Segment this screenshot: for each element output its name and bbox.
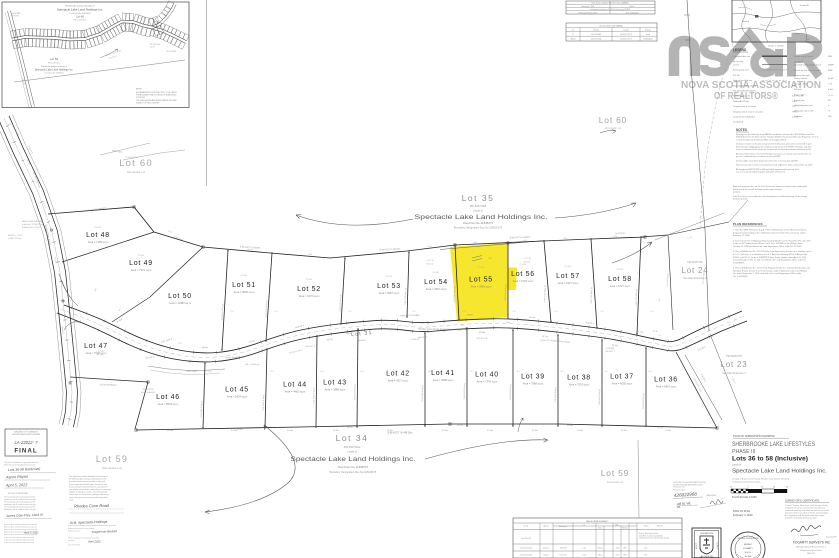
svg-text:Lots 36 to 58 (Inclusive): Lots 36 to 58 (Inclusive) bbox=[732, 456, 808, 463]
svg-text:GPS Survey Epoch 1997.0: GPS Survey Epoch 1997.0 bbox=[578, 12, 597, 14]
svg-text:Signed by KPF: Signed by KPF bbox=[826, 537, 837, 539]
svg-text:described lands comprise grant: described lands comprise granted a under… bbox=[69, 480, 105, 483]
svg-text:Survey marker: Survey marker bbox=[794, 78, 807, 80]
svg-text:Lot 38: Lot 38 bbox=[567, 375, 591, 382]
svg-text:Camperdown: Camperdown bbox=[794, 33, 805, 35]
svg-text:Lot 47: Lot 47 bbox=[84, 343, 108, 350]
svg-text:the following rights-of-way an: the following rights-of-way and boundari… bbox=[69, 478, 107, 481]
svg-text:property descript.): property descript.) bbox=[794, 74, 810, 77]
svg-text:41.40m: 41.40m bbox=[333, 430, 339, 432]
svg-text:LEGEND: LEGEND bbox=[733, 48, 747, 52]
svg-text:Area = 7195 sq.m: Area = 7195 sq.m bbox=[88, 240, 109, 244]
svg-text:4582-B: 4582-B bbox=[571, 39, 576, 41]
svg-text:Spectacle Lake Land Holdings I: Spectacle Lake Land Holdings Inc. bbox=[35, 69, 74, 72]
svg-text:Spectacle Lake Land Holding: Spectacle Lake Land Holdings Inc. bbox=[415, 214, 548, 221]
svg-text:NSCM (gone): NSCM (gone) bbox=[643, 39, 653, 41]
svg-text:Plan: Plan bbox=[644, 555, 647, 557]
svg-text:Lot 49: Lot 49 bbox=[129, 260, 153, 267]
svg-text:KEVIN P.: KEVIN P. bbox=[744, 544, 753, 546]
svg-text:Dated this the 3rd day of Febr: Dated this the 3rd day of February, 2022… bbox=[785, 517, 817, 520]
svg-text:41.40m: 41.40m bbox=[167, 430, 173, 432]
svg-text:Distances shown on the plan ar: Distances shown on the plan are ground t… bbox=[736, 143, 811, 146]
svg-text:prepared roads heading to the: prepared roads heading to the subdivisio… bbox=[733, 231, 805, 234]
svg-text:PID 60272664: PID 60272664 bbox=[470, 204, 487, 208]
svg-text:S U R V E Y: S U R V E Y bbox=[716, 542, 718, 549]
svg-text:62.0: 62.0 bbox=[361, 371, 364, 373]
svg-text:Lot 37: Lot 37 bbox=[610, 374, 634, 381]
svg-text:Utility/telephone pole: Utility/telephone pole bbox=[794, 104, 813, 107]
svg-text:Field survey work carried out: Field survey work carried out during the… bbox=[736, 164, 813, 167]
svg-text:PID 60272664 PID 60271: PID 60272664 PID 60271 bbox=[733, 91, 757, 93]
svg-text:75.0: 75.0 bbox=[651, 311, 654, 313]
svg-text:Lot 59: Lot 59 bbox=[601, 468, 629, 478]
svg-text:See note: See note bbox=[427, 263, 434, 266]
svg-text:Iron pipe or bar: Iron pipe or bar bbox=[794, 84, 808, 86]
svg-text:Area = 8092 sq.m: Area = 8092 sq.m bbox=[612, 382, 633, 386]
svg-text:& dist from 3 TO 58/57 Plan: & dist from 3 TO 58/57 Plan bbox=[22, 223, 43, 226]
svg-text:Sandy Hills: Sandy Hills bbox=[800, 5, 809, 7]
svg-text:LA-22022- 7: LA-22022- 7 bbox=[14, 440, 38, 445]
svg-text:N 87 12'33" W: N 87 12'33" W bbox=[143, 389, 154, 391]
svg-text:60.12: 60.12 bbox=[428, 246, 432, 248]
svg-text:Rhodes Cove Road: Rhodes Cove Road bbox=[74, 503, 110, 509]
svg-text:Area = 8534 sq.m: Area = 8534 sq.m bbox=[158, 402, 179, 406]
svg-text:February 14, 1988.: February 14, 1988. bbox=[733, 235, 750, 237]
svg-text:Area = 6657 sq.m: Area = 6657 sq.m bbox=[379, 291, 400, 295]
svg-text:S 03 16'53" E 94.92: S 03 16'53" E 94.92 bbox=[263, 395, 265, 411]
svg-text:Deed Doc.No.11808075: Deed Doc.No.11808075 bbox=[463, 221, 493, 225]
svg-text:Lot 54: Lot 54 bbox=[424, 279, 448, 286]
svg-text:drained systems.: drained systems. bbox=[733, 198, 749, 201]
svg-text:Lot 36: Lot 36 bbox=[654, 377, 678, 384]
svg-text:62.0: 62.0 bbox=[649, 371, 652, 373]
svg-text:53.00: 53.00 bbox=[473, 242, 477, 244]
svg-text:Lot 34: Lot 34 bbox=[336, 433, 369, 443]
svg-text:C 88 41'52" E: C 88 41'52" E bbox=[305, 346, 316, 348]
svg-text:Area = 10996 sq.m: Area = 10996 sq.m bbox=[169, 301, 191, 305]
svg-text:R=385.00: R=385.00 bbox=[358, 340, 365, 342]
svg-text:Deed Doc.No.11808075: Deed Doc.No.11808075 bbox=[338, 465, 368, 469]
svg-text:4,941,117.5454: 4,941,117.5454 bbox=[591, 39, 601, 41]
svg-text:S 03 16'53" E 94.92: S 03 16'53" E 94.92 bbox=[464, 383, 466, 399]
svg-text:34,624.4 B 827.8: 34,624.4 B 827.8 bbox=[620, 34, 632, 36]
svg-text:28.96m: 28.96m bbox=[657, 427, 663, 429]
svg-text:(combined): (combined) bbox=[733, 122, 743, 124]
svg-text:Lot 59: Lot 59 bbox=[96, 454, 128, 464]
svg-text:Approval requested for Lots 36: Approval requested for Lots 36 to 58 (In… bbox=[733, 185, 807, 188]
svg-text:Lot 55: Lot 55 bbox=[469, 277, 493, 284]
svg-text:Area = 5726 sq.m: Area = 5726 sq.m bbox=[513, 279, 534, 283]
svg-text:PLAN OF SUBDIVISION SHOWING: PLAN OF SUBDIVISION SHOWING bbox=[733, 434, 775, 438]
svg-text:3.768 80/8: 3.768 80/8 bbox=[606, 348, 614, 350]
svg-text:SURVEYOR'S CERTIFICATE: SURVEYOR'S CERTIFICATE bbox=[785, 499, 819, 503]
svg-text:roads, to the Finding Roads (S: roads, to the Finding Roads (Sheet 3 of … bbox=[733, 242, 802, 245]
svg-text:to 9-71, (Inclusive, is a subd: to 9-71, (Inclusive, is a subdivision of… bbox=[733, 253, 807, 256]
svg-text:snow clearing service can be p: snow clearing service can be provided al… bbox=[69, 496, 108, 499]
svg-text:Radius/Arc/Chord: Radius/Arc/Chord bbox=[733, 100, 749, 103]
svg-text:Lands herein subdivided: Lands herein subdivided bbox=[733, 117, 755, 119]
svg-text:Deed Doc.No.11808075: Deed Doc.No.11808075 bbox=[44, 73, 63, 75]
svg-text:L.C.C. 40: L.C.C. 40 bbox=[96, 351, 103, 353]
svg-text:Lot 46: Lot 46 bbox=[156, 394, 180, 401]
svg-text:PID 6065: PID 6065 bbox=[386, 276, 393, 278]
svg-text:41.40m: 41.40m bbox=[487, 430, 493, 432]
svg-text:Fence / ditch: Fence / ditch bbox=[794, 93, 805, 96]
svg-text:Boundary Designation Doc.No.: Boundary Designation Doc.No.118108075 bbox=[330, 471, 377, 474]
svg-text:46.58m: 46.58m bbox=[202, 347, 209, 349]
svg-text:PID 6065: PID 6065 bbox=[241, 275, 248, 277]
svg-text:owners should be deemed that t: owners should be deemed that the road wi… bbox=[69, 485, 108, 488]
svg-text:S 03 16'53" E 94.92: S 03 16'53" E 94.92 bbox=[313, 388, 315, 404]
svg-text:S 03 16'53" E 94.92: S 03 16'53" E 94.92 bbox=[643, 393, 645, 409]
svg-text:S 03 16'53" E 94.92: S 03 16'53" E 94.92 bbox=[422, 386, 424, 402]
svg-text:B4V 3C2: B4V 3C2 bbox=[807, 553, 815, 555]
svg-text:PID 60157378: PID 60157378 bbox=[726, 355, 742, 358]
svg-text:See Plan Reference 4: See Plan Reference 4 bbox=[722, 372, 746, 375]
svg-text:41.40m: 41.40m bbox=[665, 430, 671, 432]
svg-text:185sq.: 185sq. bbox=[598, 555, 603, 557]
svg-text:FOGARTY SURVEYS INC.: FOGARTY SURVEYS INC. bbox=[793, 541, 831, 545]
svg-text:3. Plan of Subdivision No. 13: 3. Plan of Subdivision No. 131 001-03 by… bbox=[733, 250, 812, 253]
svg-text:L.C.C. 38: L.C.C. 38 bbox=[523, 258, 530, 260]
svg-text:Area = 6727 sq.m: Area = 6727 sq.m bbox=[610, 284, 631, 288]
svg-text:April 5, 2022: April 5, 2022 bbox=[5, 483, 28, 487]
svg-text:Lot 44: Lot 44 bbox=[283, 382, 307, 389]
svg-text:Inc. dated September 7, 2020,: Inc. dated September 7, 2020, and filed … bbox=[733, 272, 802, 275]
svg-text:S 03 16'53" E 94.92: S 03 16'53" E 94.92 bbox=[201, 402, 203, 418]
svg-text:Lot 58: Lot 58 bbox=[608, 276, 632, 283]
svg-text:62.0: 62.0 bbox=[209, 371, 212, 373]
svg-text:PID 60/mile(?) FD: PID 60/mile(?) FD bbox=[125, 157, 139, 159]
svg-text:Lot 40: Lot 40 bbox=[475, 372, 499, 379]
svg-text:Area = 4327 sq.m: Area = 4327 sq.m bbox=[388, 379, 409, 383]
svg-text:FINAL: FINAL bbox=[14, 448, 37, 455]
svg-text:April 2022: April 2022 bbox=[87, 540, 101, 544]
svg-text:2006-1, and S/D (-), lands of: 2006-1, and S/D (-), lands of SHERRIFS N… bbox=[733, 256, 807, 259]
svg-text:SAME CURVE PLAN 33/8/8: SAME CURVE PLAN 33/8/8 bbox=[22, 220, 43, 223]
svg-text:+1.68: +1.68 bbox=[615, 548, 619, 550]
svg-text:PID 60157394: PID 60157394 bbox=[150, 44, 160, 46]
svg-text:S 03 16'53" E 94.92: S 03 16'53" E 94.92 bbox=[555, 387, 557, 403]
svg-text:75.0: 75.0 bbox=[275, 311, 278, 313]
svg-text:Round iron bar found (noted in: Round iron bar found (noted in bbox=[794, 69, 821, 72]
svg-text:Lands of: Lands of bbox=[347, 450, 357, 454]
svg-text:Standard survey marker found: Standard survey marker found bbox=[794, 63, 821, 66]
svg-text:DATE OF PLAN: DATE OF PLAN bbox=[733, 510, 750, 513]
svg-text:1 88 43'37" 2: 1 88 43'37" 2 bbox=[605, 351, 615, 353]
svg-text:by this plan: by this plan bbox=[733, 60, 743, 63]
svg-text:Lot 52: Lot 52 bbox=[297, 286, 321, 293]
svg-text:+1.58: +1.58 bbox=[582, 555, 586, 557]
svg-text:41.40m: 41.40m bbox=[532, 430, 538, 432]
svg-text:45.08: 45.08 bbox=[308, 254, 312, 256]
svg-text:Lot 51: Lot 51 bbox=[232, 282, 256, 289]
svg-text:+3.68: +3.68 bbox=[615, 555, 619, 557]
svg-text:PID No.: PID No. bbox=[733, 75, 740, 77]
svg-text:NSCM No. 4 20127: NSCM No. 4 20127 bbox=[8, 235, 23, 237]
svg-text:62.0: 62.0 bbox=[517, 371, 520, 373]
svg-text:No. 1-12939581.: No. 1-12939581. bbox=[733, 276, 748, 278]
svg-text:I - Ø: I - Ø bbox=[828, 84, 832, 86]
svg-text:17811 3/8: 17811 3/8 bbox=[560, 548, 567, 550]
svg-text:R=128.01 A=64.02: R=128.01 A=64.02 bbox=[141, 391, 155, 394]
svg-text:S 87 40'17" W: S 87 40'17" W bbox=[477, 338, 488, 340]
svg-text:60sq.m: 60sq.m bbox=[544, 555, 550, 557]
svg-text:36.58m: 36.58m bbox=[479, 332, 486, 334]
svg-text:2.48/45.58: 2.48/45.58 bbox=[411, 339, 419, 341]
svg-text:548 Upper Branch Road, Unit No: 548 Upper Branch Road, Unit No. 2 bbox=[796, 546, 826, 549]
svg-text:Lot 53: Lot 53 bbox=[377, 283, 401, 290]
svg-text:L.C.C. 32: L.C.C. 32 bbox=[426, 260, 433, 262]
svg-text:Drill hole: Drill hole bbox=[794, 89, 803, 91]
svg-text:4. Plan of Subdivision No. 13: 4. Plan of Subdivision No. 13-11729 by F… bbox=[733, 267, 811, 270]
svg-text:Calculated dist. not: Calculated dist. not bbox=[733, 55, 750, 58]
svg-text:Lunenburg County, Nova Scotia: Lunenburg County, Nova Scotia bbox=[732, 481, 761, 484]
svg-text:See note: See note bbox=[524, 261, 531, 264]
svg-text:February 3, 2022: February 3, 2022 bbox=[733, 513, 753, 517]
svg-text:NOTICE OF APPROVAL: NOTICE OF APPROVAL bbox=[8, 492, 28, 495]
svg-text:TPRC 4 88'53": TPRC 4 88'53" bbox=[186, 371, 198, 373]
svg-text:PORTIONS.: PORTIONS. bbox=[136, 97, 146, 99]
svg-text:Hemford: Hemford bbox=[742, 21, 749, 23]
svg-text:62.0: 62.0 bbox=[605, 371, 608, 373]
svg-text:● DH: ● DH bbox=[828, 89, 833, 91]
svg-text:Zone 5 (Modified): Zone 5 (Modified) bbox=[626, 12, 639, 14]
svg-text:Lot 60: Lot 60 bbox=[76, 15, 84, 19]
svg-text:S 03 16'53" E 94.92: S 03 16'53" E 94.92 bbox=[510, 384, 512, 400]
svg-text:25.9: 25.9 bbox=[460, 325, 463, 327]
svg-text:75.0: 75.0 bbox=[513, 311, 516, 313]
svg-text:portions.: portions. bbox=[733, 191, 741, 194]
svg-text:Area = 3888 sq.m: Area = 3888 sq.m bbox=[325, 388, 346, 392]
svg-text:PID 6065: PID 6065 bbox=[138, 255, 145, 257]
svg-text:S 03 16'53" E 94.92: S 03 16'53" E 94.92 bbox=[599, 389, 601, 405]
svg-text:January 18, 1988 and filed at: January 18, 1988 and filed at the Land R… bbox=[733, 245, 803, 248]
svg-text:Bridgewater, Nova Scotia: Bridgewater, Nova Scotia bbox=[800, 549, 822, 552]
svg-text:45.03m TPC: 45.03m TPC bbox=[540, 340, 550, 342]
svg-text:RIB 4 SM: RIB 4 SM bbox=[12, 15, 19, 17]
svg-text:roads.: roads. bbox=[69, 498, 74, 501]
svg-text:Lot 43: Lot 43 bbox=[323, 380, 347, 387]
svg-text:FOGARTY: FOGARTY bbox=[743, 547, 753, 550]
svg-text:62.0: 62.0 bbox=[429, 371, 432, 373]
svg-text:PLAN SCALE 1:1000: PLAN SCALE 1:1000 bbox=[732, 495, 757, 499]
svg-text:Tangent point of reverse curva: Tangent point of reverse curvature bbox=[733, 110, 764, 113]
svg-text:Bearings are grid bearings fro: Bearings are grid bearings from NAD83 co… bbox=[736, 133, 815, 136]
svg-text:Lot 56: Lot 56 bbox=[511, 271, 535, 278]
svg-text:Municipal Government Act for t: Municipal Government Act for the parcels… bbox=[4, 464, 36, 467]
svg-text:Lots 36 to 58 are servicable l: Lots 36 to 58 are servicable lots, with … bbox=[733, 195, 807, 198]
svg-text:PID 6065: PID 6065 bbox=[433, 272, 440, 274]
svg-text:◄°: ◄° bbox=[828, 110, 831, 113]
svg-text:Lots 1-1 to 23 (included) toge: Lots 1-1 to 23 (included) together with … bbox=[736, 171, 786, 174]
svg-text:PID 6065: PID 6065 bbox=[520, 264, 527, 266]
svg-text:Spectacle Lake Land Holding: Spectacle Lake Land Holdings Inc. bbox=[732, 469, 827, 475]
svg-text:Scale 1 : 50000: Scale 1 : 50000 bbox=[768, 46, 784, 48]
svg-text:Lot 59: Lot 59 bbox=[50, 57, 59, 61]
svg-text:62.0: 62.0 bbox=[471, 371, 474, 373]
svg-text:Survey post: Survey post bbox=[794, 99, 805, 102]
svg-text:addition for taking as a publi: addition for taking as a public road and… bbox=[69, 491, 108, 494]
svg-text:PID 60272662: PID 60272662 bbox=[344, 445, 361, 449]
svg-text:75.0: 75.0 bbox=[555, 311, 558, 313]
svg-text:Survey marker found: Survey marker found bbox=[794, 56, 813, 58]
svg-text:Lot 23: Lot 23 bbox=[720, 360, 747, 369]
svg-text:Property identifier number: Property identifier number bbox=[733, 84, 756, 87]
svg-text:Utility pole and anchor: Utility pole and anchor bbox=[794, 110, 814, 113]
svg-text:Found: Found bbox=[646, 34, 650, 36]
svg-text:Lot 57: Lot 57 bbox=[556, 273, 580, 280]
svg-text:PID 60272664: PID 60272664 bbox=[166, 51, 176, 53]
svg-text:The right-of-way roads, deposi: The right-of-way roads, deposited and dr… bbox=[69, 475, 108, 478]
svg-text:SHERBROOKE LAKE LIFESTYLES: SHERBROOKE LAKE LIFESTYLES bbox=[732, 442, 815, 448]
svg-text:Lake: Lake bbox=[806, 39, 810, 41]
svg-text:30.48: 30.48 bbox=[506, 322, 510, 324]
svg-text:ances to adjacent lands shown: ances to adjacent lands shown on the pla… bbox=[736, 148, 812, 151]
svg-text:Area = 4598 sq.m: Area = 4598 sq.m bbox=[433, 378, 454, 382]
svg-text:41.40m: 41.40m bbox=[387, 430, 393, 432]
svg-text:Lot 45: Lot 45 bbox=[225, 387, 249, 394]
svg-text:34,432.4 B 277.4: 34,432.4 B 277.4 bbox=[620, 39, 632, 41]
svg-text:SUBJECT OF FIELD SURVEY.: SUBJECT OF FIELD SURVEY. bbox=[136, 103, 160, 105]
svg-text:(Remainder Lot): (Remainder Lot) bbox=[102, 466, 122, 470]
svg-text:Spectacle Lake Land Holding: Spectacle Lake Land Holdings Inc. bbox=[291, 456, 416, 463]
svg-text:1. Plan No. NSM 7765 by G. Ro: 1. Plan No. NSM 7765 by G. Roy A. Fuller… bbox=[733, 229, 807, 232]
svg-text:Arc ring: Arc ring bbox=[97, 353, 103, 356]
svg-text:Time in: Time in bbox=[644, 526, 649, 528]
svg-text:47.30: 47.30 bbox=[613, 236, 617, 238]
svg-text:Area = 7278 sq.m: Area = 7278 sq.m bbox=[477, 380, 498, 384]
svg-text:47.92: 47.92 bbox=[563, 238, 567, 240]
svg-text:46.30m: 46.30m bbox=[237, 429, 243, 431]
svg-text:N 87 25' E: N 87 25' E bbox=[615, 233, 625, 235]
svg-text:Area = 4482 sq.m: Area = 4482 sq.m bbox=[285, 390, 306, 394]
svg-text:part of a subdivided parcel sh: part of a subdivided parcel shown on pla… bbox=[736, 155, 781, 158]
svg-text:Area = 7472 sq.m: Area = 7472 sq.m bbox=[131, 268, 152, 272]
svg-text:75.0: 75.0 bbox=[349, 311, 352, 313]
svg-text:Remainder Lot: Remainder Lot bbox=[127, 170, 146, 174]
svg-text:DW: DW bbox=[828, 116, 831, 118]
svg-text:Spectacle Lake Land Holdings I: Spectacle Lake Land Holdings Inc. bbox=[57, 8, 103, 12]
svg-text:4582-B based on the Nova Scoti: 4582-B based on the Nova Scotia 3 degree… bbox=[736, 136, 819, 139]
svg-text:62.0: 62.0 bbox=[271, 371, 274, 373]
svg-text:45.72m: 45.72m bbox=[347, 427, 353, 429]
svg-text:PLAN REFERENCES: PLAN REFERENCES bbox=[733, 222, 763, 226]
svg-text:PID 6065: PID 6065 bbox=[478, 267, 485, 269]
svg-text:NOTE:: NOTE: bbox=[136, 89, 143, 91]
svg-text:41.40m: 41.40m bbox=[621, 430, 627, 432]
svg-text:All designated NSCM RIM or DB: All designated NSCM RIM or DB (included)… bbox=[736, 168, 800, 171]
svg-text:Remainder Lot: Remainder Lot bbox=[605, 127, 622, 130]
svg-text:Zone 5: Zone 5 bbox=[630, 6, 635, 8]
svg-text:Lands of: Lands of bbox=[732, 464, 742, 467]
svg-text:Lot 39: Lot 39 bbox=[521, 374, 545, 381]
svg-text:Lot 35: Lot 35 bbox=[462, 193, 495, 203]
svg-text:P-11298987.: P-11298987. bbox=[733, 262, 745, 264]
svg-text:Grid Coordinate Table (NAD83): Grid Coordinate Table (NAD83) bbox=[599, 25, 623, 28]
svg-text:-x-,-o-: -x-,-o- bbox=[828, 94, 834, 96]
svg-text:TPC 88: TPC 88 bbox=[652, 331, 657, 333]
svg-text:All monuments found, set and v: All monuments found, set and verified by… bbox=[736, 152, 811, 155]
svg-text:Area = 9176 sq.m: Area = 9176 sq.m bbox=[299, 294, 320, 298]
svg-text:(as noted): (as noted) bbox=[794, 60, 803, 63]
svg-text:Lot 50: Lot 50 bbox=[168, 293, 192, 300]
svg-text:Driveway: Driveway bbox=[794, 116, 802, 118]
svg-text:distances by multiplying by th: distances by multiplying by the combined… bbox=[736, 145, 812, 148]
svg-text:N.S.L.S.: N.S.L.S. bbox=[745, 552, 752, 554]
svg-text:Mag.: Mag. bbox=[615, 525, 619, 527]
svg-text:Plan: Plan bbox=[644, 548, 647, 550]
svg-text:Boundary Designation Doc.No.: Boundary Designation Doc.No.118020073 bbox=[454, 226, 503, 230]
svg-text:Area = 6327 sq.m: Area = 6327 sq.m bbox=[558, 281, 579, 285]
svg-text:disclosure of the overall drai: disclosure of the overall drainage syste… bbox=[733, 188, 783, 191]
svg-text:central meridian 64 30 West (C: central meridian 64 30 West (CSRS) surve… bbox=[736, 138, 787, 141]
svg-text:62.0: 62.0 bbox=[561, 371, 564, 373]
svg-text:Lot line: Lot line bbox=[733, 64, 740, 67]
svg-text:17811.1: 17811.1 bbox=[597, 548, 602, 550]
svg-text:S 03 16'53" E 94.92: S 03 16'53" E 94.92 bbox=[354, 384, 356, 400]
svg-text:B: B bbox=[572, 34, 573, 36]
svg-text:Tangent point of curvature: Tangent point of curvature bbox=[733, 105, 757, 108]
svg-text:Area = 7888 sq.m: Area = 7888 sq.m bbox=[523, 382, 544, 386]
svg-text:4,941,136.6363: 4,941,136.6363 bbox=[591, 34, 602, 36]
svg-text:60272664: 60272664 bbox=[770, 75, 780, 77]
svg-text:PID & DB Nos.: PID & DB Nos. bbox=[73, 20, 87, 22]
svg-text:SSMF: SSMF bbox=[828, 64, 834, 66]
svg-text:Area = 4662 sq.m: Area = 4662 sq.m bbox=[426, 287, 447, 291]
svg-text:36.27: 36.27 bbox=[523, 240, 527, 242]
svg-text:utilities such as electrical e: utilities such as electrical etc., garba… bbox=[69, 493, 109, 496]
svg-text:Lot 24: Lot 24 bbox=[681, 266, 708, 275]
svg-text:Area = 8334 sq.m: Area = 8334 sq.m bbox=[227, 395, 248, 399]
svg-text:PID 6065: PID 6065 bbox=[95, 227, 102, 229]
svg-text:75.0: 75.0 bbox=[231, 311, 234, 313]
svg-text:41.40m: 41.40m bbox=[577, 430, 583, 432]
svg-text:Aaron Rhyno: Aaron Rhyno bbox=[5, 475, 28, 480]
svg-text:PARCEL AREA SUMMARY: PARCEL AREA SUMMARY bbox=[586, 520, 609, 523]
svg-text:1 88 . c 46.58m dist: 1 88 . c 46.58m dist bbox=[245, 363, 260, 366]
svg-text:2. N.S. Department of Highway: 2. N.S. Department of Highways Plan show… bbox=[733, 239, 811, 242]
svg-text:Area = 9056 sq.m: Area = 9056 sq.m bbox=[234, 290, 255, 294]
svg-text:Lot 48: Lot 48 bbox=[86, 232, 110, 239]
svg-text:75.0: 75.0 bbox=[601, 311, 604, 313]
svg-text:PID 6065: PID 6065 bbox=[306, 279, 313, 281]
svg-text:1.68: 1.68 bbox=[583, 548, 586, 550]
svg-text:PID 6065: PID 6065 bbox=[565, 266, 572, 268]
svg-text:⊕ SM: ⊕ SM bbox=[828, 77, 834, 80]
svg-text:Existing prop. line: Existing prop. line bbox=[733, 69, 750, 72]
svg-text:PHASE III: PHASE III bbox=[732, 449, 755, 455]
svg-text:Area = 6467 sq.m: Area = 6467 sq.m bbox=[656, 385, 677, 389]
svg-text:Area = 5855 sq.m: Area = 5855 sq.m bbox=[471, 285, 492, 289]
svg-text:☀: ☀ bbox=[828, 104, 830, 107]
svg-text:PID 60157394: PID 60157394 bbox=[687, 261, 703, 264]
svg-text:75.00m: 75.00m bbox=[467, 315, 474, 317]
svg-text:herein registration deed/charg: herein registration deed/charges. Invest… bbox=[69, 483, 107, 486]
svg-text:Lot 60: Lot 60 bbox=[599, 115, 627, 125]
svg-text:Published Jan. 14 2019: Published Jan. 14 2019 bbox=[22, 227, 40, 229]
svg-text:is 4568 77.14 Bal.: is 4568 77.14 Bal. bbox=[8, 238, 22, 240]
svg-text:RIBF: RIBF bbox=[828, 70, 833, 72]
svg-text:PID & DB Nos.: PID & DB Nos. bbox=[48, 63, 60, 65]
svg-text:75.0: 75.0 bbox=[413, 311, 416, 313]
svg-text:Remain: Remain bbox=[622, 528, 627, 530]
svg-text:+REF 90203: +REF 90203 bbox=[706, 495, 716, 497]
svg-text:78.16m: 78.16m bbox=[247, 249, 253, 251]
svg-text:revised through to July 10, 20: revised through to July 10, 2017 and fil… bbox=[733, 259, 807, 262]
svg-text:See Plan Reference 4: See Plan Reference 4 bbox=[683, 277, 707, 280]
svg-text:Remainder Lot: Remainder Lot bbox=[607, 481, 624, 484]
